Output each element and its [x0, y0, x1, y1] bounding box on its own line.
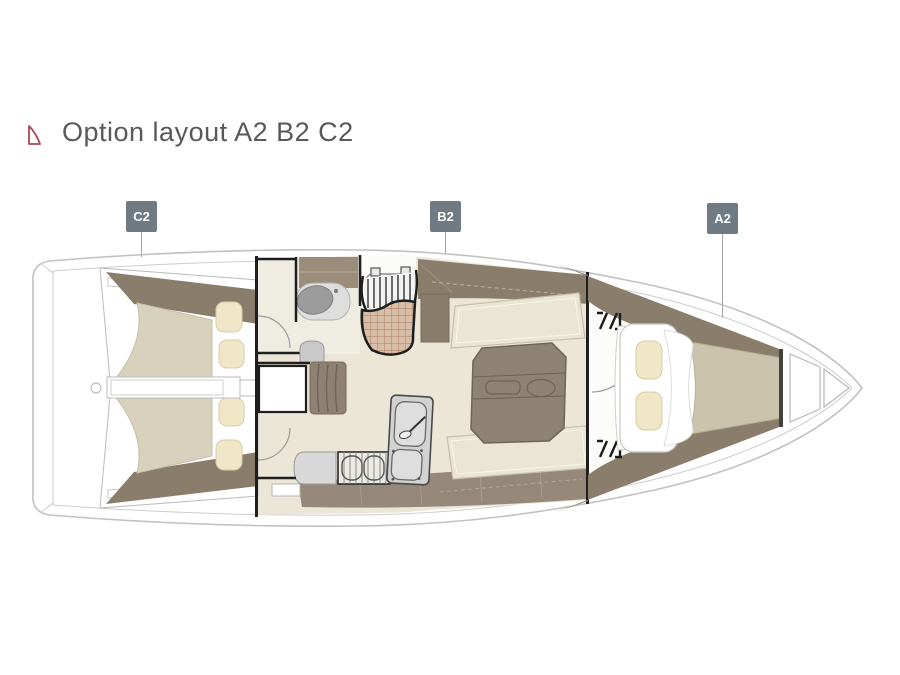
- galley-sink: [387, 395, 434, 485]
- pillow: [216, 302, 242, 332]
- leader-line-a2: [722, 234, 723, 318]
- badge-b2: B2: [430, 201, 461, 232]
- salon-table: [471, 343, 566, 443]
- galley-fridge: [294, 452, 336, 484]
- aft-cabin-port: [100, 268, 258, 380]
- yacht-floorplan: [0, 0, 900, 675]
- aft-cabin-starboard: [100, 396, 258, 508]
- v-berth-mattress: [690, 342, 782, 434]
- leader-line-c2: [141, 232, 142, 257]
- page: Option layout A2 B2 C2 C2 B2 A2: [0, 0, 900, 675]
- pillow: [219, 398, 244, 426]
- pillow: [636, 341, 662, 379]
- badge-c2: C2: [126, 201, 157, 232]
- companionway-steps: [362, 254, 417, 355]
- chart-table: [259, 366, 306, 412]
- salon-cabinet: [421, 294, 449, 342]
- pillow: [219, 340, 244, 368]
- head-compartment: [258, 255, 360, 354]
- stern-divider: [91, 377, 240, 398]
- pillow: [216, 440, 242, 470]
- galley-stove: [338, 452, 390, 484]
- leader-line-b2: [445, 232, 446, 253]
- rudder-post: [91, 383, 101, 393]
- pillow: [636, 392, 662, 430]
- badge-a2: A2: [707, 203, 738, 234]
